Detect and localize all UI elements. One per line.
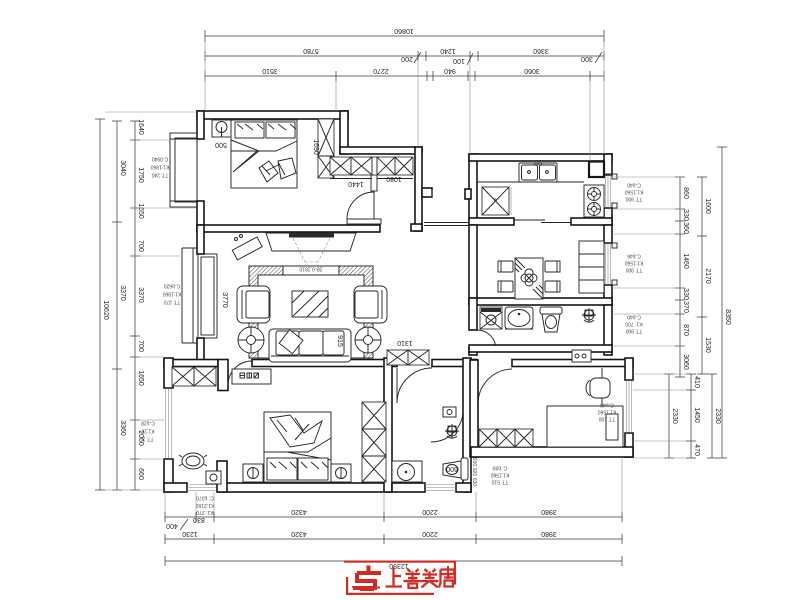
svg-text:300: 300 <box>581 55 593 62</box>
svg-text:3770: 3770 <box>221 292 228 308</box>
svg-text:3360: 3360 <box>533 47 549 54</box>
svg-text:10620: 10620 <box>102 300 109 320</box>
svg-text:3510: 3510 <box>262 67 278 74</box>
svg-text:TT: 2: TT: 2 <box>142 436 153 442</box>
svg-text:TT: 900: TT: 900 <box>625 267 642 273</box>
svg-text:500: 500 <box>215 141 227 148</box>
svg-text:410: 410 <box>693 376 700 388</box>
svg-text:1460: 1460 <box>682 253 689 269</box>
svg-text:2270: 2270 <box>373 67 389 74</box>
svg-text:1440: 1440 <box>348 180 364 187</box>
svg-text:TT: 900: TT: 900 <box>625 196 642 202</box>
svg-text:K1:1860: K1:1860 <box>162 291 181 297</box>
svg-text:3980: 3980 <box>541 530 557 537</box>
svg-text:1230: 1230 <box>182 530 198 537</box>
svg-text:1450: 1450 <box>693 407 700 423</box>
svg-text:2200: 2200 <box>422 508 438 515</box>
svg-text:C-0940: C-0940 <box>152 156 169 162</box>
svg-text:K1:1560: K1:1560 <box>597 409 616 415</box>
svg-text:3370: 3370 <box>137 287 144 303</box>
svg-text:370: 370 <box>682 301 689 313</box>
svg-text:C: b370: C: b370 <box>196 495 214 501</box>
svg-text:1690: 1690 <box>312 139 319 155</box>
svg-text:C-b46: C-b46 <box>627 253 641 259</box>
svg-text:360: 360 <box>682 222 689 234</box>
svg-text:K1: 270: K1: 270 <box>196 509 213 515</box>
svg-text:1530: 1530 <box>704 337 711 353</box>
svg-text:930: 930 <box>471 458 477 467</box>
svg-text:C: b90: C: b90 <box>492 465 507 471</box>
svg-text:3980: 3980 <box>541 508 557 515</box>
svg-text:4320: 4320 <box>291 508 307 515</box>
svg-text:TT: 510: TT: 510 <box>491 479 508 485</box>
svg-text:1310: 1310 <box>397 339 413 346</box>
svg-text:2200: 2200 <box>422 530 438 537</box>
svg-text:TT: 900: TT: 900 <box>625 328 642 334</box>
svg-text:12390: 12390 <box>389 562 409 569</box>
svg-text:K1:2160: K1:2160 <box>195 502 214 508</box>
svg-text:3060: 3060 <box>524 67 540 74</box>
svg-text:K1:1560: K1:1560 <box>490 472 509 478</box>
svg-text:600: 600 <box>446 465 458 472</box>
svg-text:660: 660 <box>137 468 144 480</box>
svg-text:2170: 2170 <box>704 268 711 284</box>
svg-text:K1:1860: K1:1860 <box>150 164 169 170</box>
svg-text:K1:1560: K1:1560 <box>624 189 643 195</box>
svg-text:3360: 3360 <box>119 420 126 436</box>
svg-text:4320: 4320 <box>291 530 307 537</box>
svg-text:630: 630 <box>471 478 477 487</box>
svg-text:4L: 4L <box>492 196 498 202</box>
svg-text:C-b40: C-b40 <box>600 402 614 408</box>
svg-text:8350: 8350 <box>724 309 731 325</box>
svg-text:330: 330 <box>682 209 689 221</box>
svg-text:1750: 1750 <box>137 167 144 183</box>
svg-text:C-b28: C-b28 <box>141 420 155 426</box>
svg-text:1240: 1240 <box>440 47 456 54</box>
svg-text:10860: 10860 <box>394 27 414 34</box>
svg-text:100: 100 <box>453 57 465 64</box>
svg-text:940: 940 <box>444 67 456 74</box>
svg-text:3060: 3060 <box>682 354 689 370</box>
svg-text:200: 200 <box>401 55 413 62</box>
svg-text:5780: 5780 <box>303 47 319 54</box>
svg-text:1650: 1650 <box>137 203 144 219</box>
svg-text:470: 470 <box>693 444 700 456</box>
svg-text:K1:1560: K1:1560 <box>624 260 643 266</box>
svg-text:C-b40: C-b40 <box>627 314 641 320</box>
svg-text:1600: 1600 <box>704 198 711 214</box>
svg-text:1640: 1640 <box>137 119 144 135</box>
svg-text:400: 400 <box>166 522 178 529</box>
svg-text:2330: 2330 <box>714 408 721 424</box>
svg-text:870: 870 <box>682 324 689 336</box>
svg-text:TT: 370: TT: 370 <box>163 299 180 305</box>
svg-text:860: 860 <box>682 187 689 199</box>
svg-text:2330: 2330 <box>671 408 678 424</box>
svg-text:1650: 1650 <box>137 370 144 386</box>
svg-text:TT: 240: TT: 240 <box>151 172 168 178</box>
svg-text:2B-0.2810: 2B-0.2810 <box>299 266 322 272</box>
svg-text:700: 700 <box>137 240 144 252</box>
svg-text:C-b620: C-b620 <box>164 283 181 289</box>
svg-text:1080: 1080 <box>386 175 402 182</box>
svg-text:3370: 3370 <box>119 285 126 301</box>
svg-text:K1: 700: K1: 700 <box>625 321 642 327</box>
svg-text:330: 330 <box>682 288 689 300</box>
svg-text:830: 830 <box>193 516 205 523</box>
svg-text:C-b40: C-b40 <box>627 182 641 188</box>
svg-text:TT: 100: TT: 100 <box>598 416 615 422</box>
svg-text:3040: 3040 <box>119 160 126 176</box>
svg-text:915: 915 <box>336 335 343 347</box>
svg-text:920: 920 <box>471 468 477 477</box>
svg-text:700: 700 <box>137 340 144 352</box>
svg-text:K1:28: K1:28 <box>141 428 154 434</box>
